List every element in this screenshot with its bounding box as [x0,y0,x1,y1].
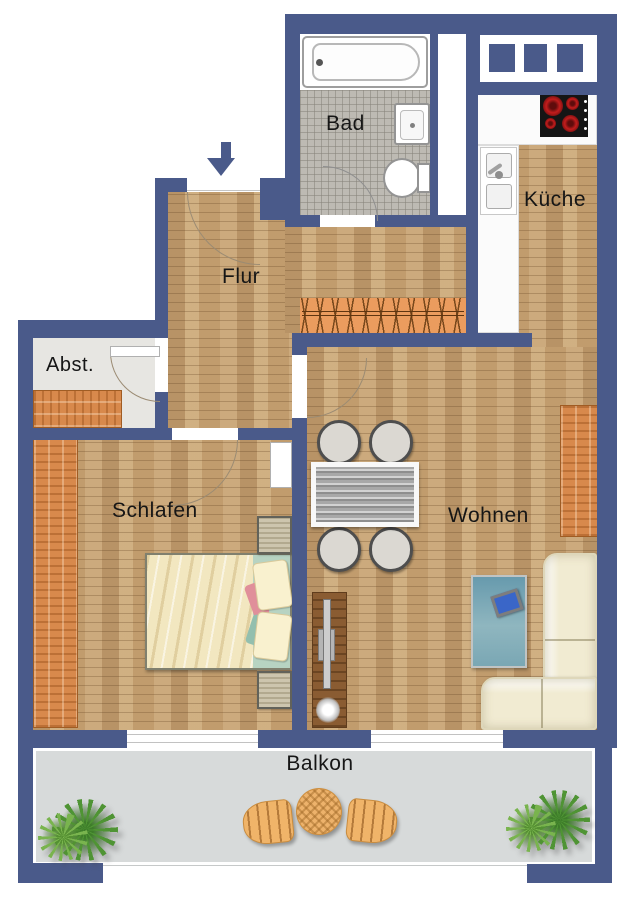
room-label-flur: Flur [222,265,260,289]
wall-kitchen-left [466,14,478,333]
wall-bad-top [285,14,466,34]
wall-garderobe [292,333,532,347]
stove-knob-icon [584,109,587,112]
coat-rack [300,298,466,333]
stove-knob-icon [584,100,587,103]
wall-entry-stub-right [260,178,300,220]
wall-right-outer [597,14,617,748]
stove-burner-icon [562,115,579,132]
balcony-plant-right [506,790,590,856]
wall-left-outer [18,320,33,883]
sink-faucet-base-icon [495,171,503,179]
bathtub-faucet-icon [316,59,323,66]
rug [471,575,527,668]
balcony-post-right [527,864,612,883]
bed-duvet [147,555,253,668]
window-pane-icon [489,44,515,72]
room-label-abst: Abst. [46,354,94,377]
wall-flur-left [155,178,168,338]
wall-bad-right [430,14,438,227]
wall-schlafen-top-a [18,428,172,440]
kitchen-window-band [480,35,597,82]
plant-leaves-icon [506,804,556,852]
entrance-arrow-head-icon [207,158,235,176]
bathtub-basin [312,43,420,81]
bed-pillow [252,559,293,611]
double-bed [145,553,292,670]
dining-chair [369,527,413,572]
bathtub [302,36,428,88]
wall-divider-upper [292,347,307,355]
sideboard [560,405,598,537]
abst-door-leaf [110,346,160,357]
room-label-wohnen: Wohnen [448,504,529,528]
window-pane-icon [557,44,583,72]
bad-washbasin [394,103,430,145]
small-plant-icon [316,697,340,723]
tv-board [312,592,347,728]
wardrobe [33,438,78,728]
tv-screen-icon [323,599,331,689]
stove-burner-icon [543,96,563,116]
shaft [438,34,466,215]
wohnen-door-opening [292,355,307,418]
dining-chair [317,420,361,465]
stove-burner-icon [545,118,556,129]
wohnen-balcony-window [371,730,503,748]
wall-divider-lower [292,418,307,730]
dining-chair [317,527,361,572]
balcony-post-left [18,863,103,883]
sink-basin-lower [486,184,512,209]
window-pane-icon [524,44,547,72]
kitchen-sink [480,147,517,215]
wall-bottom-a [18,730,127,748]
nightstand [257,516,292,554]
wall-bad-bottom-b [375,215,466,227]
wall-schlafen-top-b [238,428,292,440]
corner-sofa-front [481,677,597,730]
dining-chair [369,420,413,465]
wall-bottom-b [258,730,371,748]
room-label-bad: Bad [326,112,365,136]
toilet-bowl [383,158,421,198]
floorplan: Bad Küche Flur Abst. Schlafen Wohnen Bal… [0,0,636,900]
dining-table [311,462,419,527]
stove [540,92,588,137]
toilet-tank [417,163,431,193]
storage-shelf [33,390,122,428]
wall-abst-top [18,320,168,338]
schlafen-balcony-window [127,730,258,748]
wall-balcony-right [595,740,612,883]
stove-knob-icon [584,127,587,130]
stove-knob-icon [584,118,587,121]
washbasin-drain-icon [410,123,415,128]
room-label-schlafen: Schlafen [112,499,198,523]
nightstand [257,671,292,709]
balcony-plant-left [38,793,120,865]
schlafen-door-leaf [270,442,292,488]
entry-door-line [187,190,260,191]
balcony-table [296,788,342,835]
plant-leaves-icon [38,813,88,861]
bed-pillow [252,611,292,662]
stove-burner-icon [566,97,579,110]
coat-rack-rail [302,311,464,316]
room-label-balkon: Balkon [240,752,400,776]
room-label-kueche: Küche [524,188,586,212]
media-device [490,588,523,618]
